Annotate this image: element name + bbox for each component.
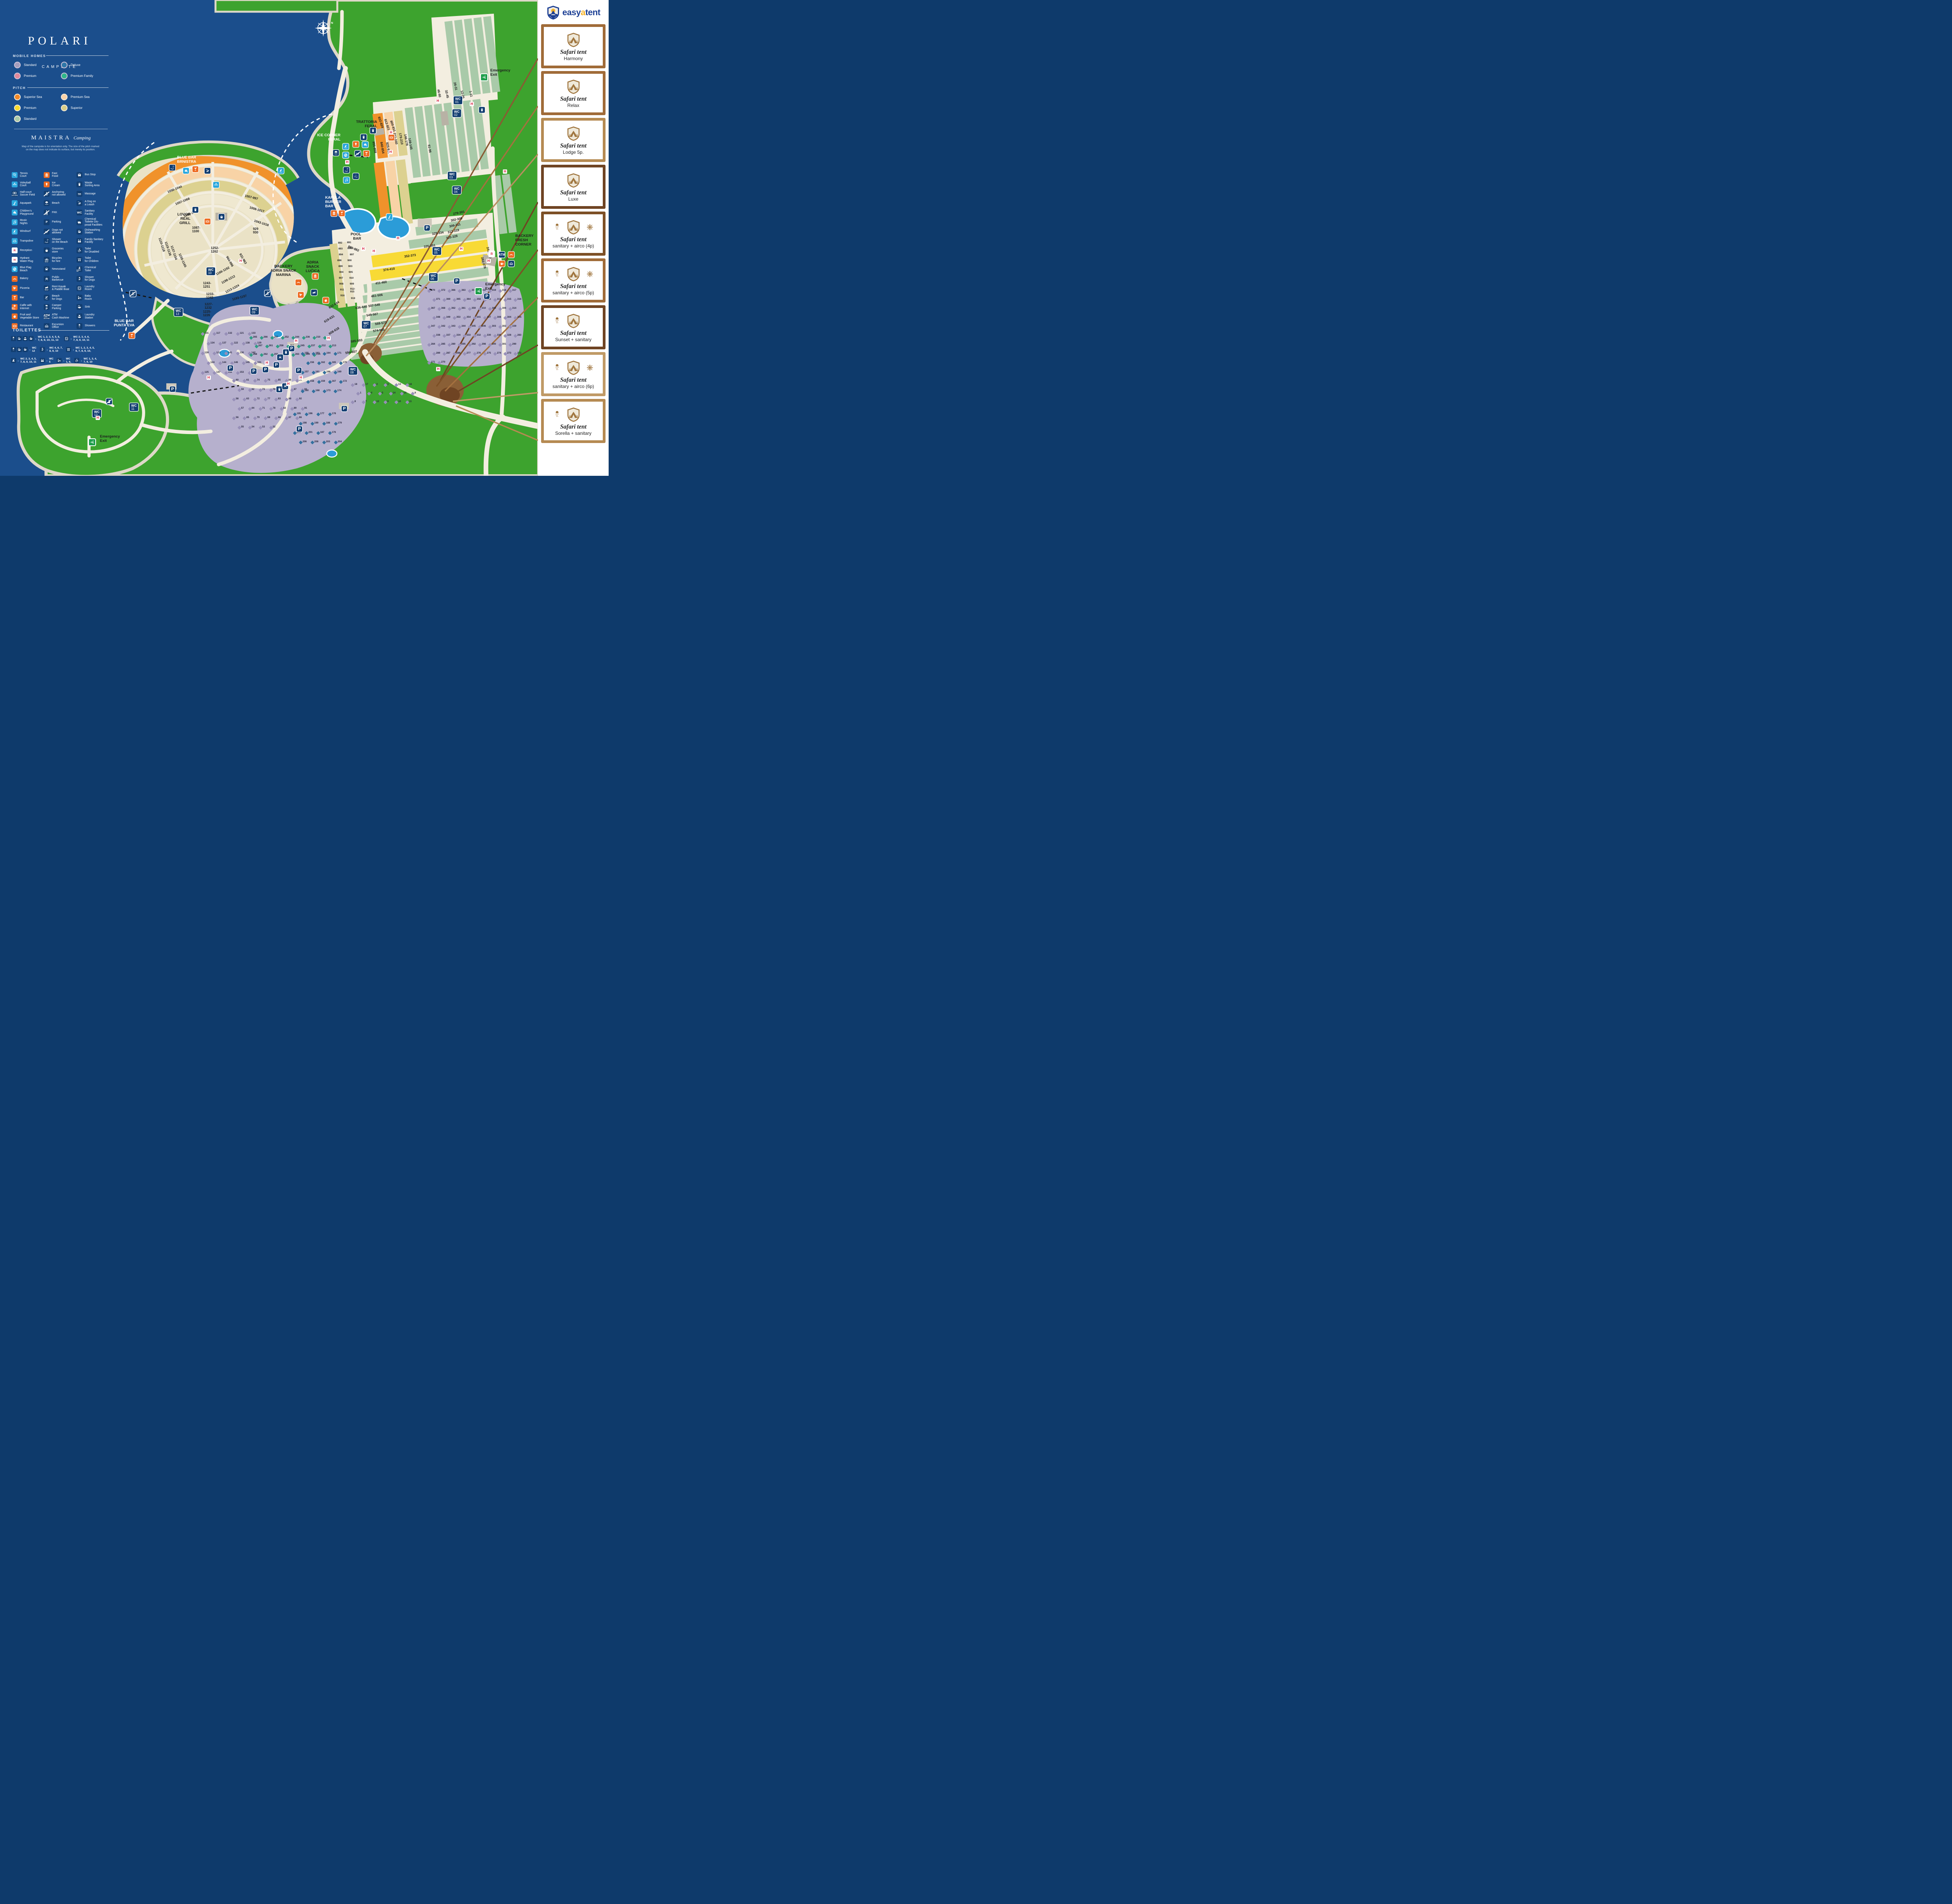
legend-item: Standard	[14, 62, 61, 68]
card-title: Safari tent	[560, 96, 587, 102]
amenity: Blue Flag Beach	[12, 266, 39, 272]
amenity-icon	[12, 210, 18, 215]
amenity-icon	[44, 238, 50, 244]
amenity: Toilet for Disabled	[77, 247, 103, 253]
amenity: A Dog on a Leash	[77, 200, 103, 206]
amenity: P Camper Parking	[44, 304, 69, 310]
amenity-icon: RENT	[44, 257, 50, 263]
mobile-homes-header: MOBILE HOMES	[13, 54, 46, 58]
tent-shield-icon	[566, 32, 581, 48]
card-title: Safari tent	[560, 330, 587, 336]
tent-shield-icon	[566, 359, 581, 376]
amenity-icon	[77, 219, 82, 225]
amenity: Showers	[77, 323, 103, 329]
pitch-header: PITCH	[13, 86, 26, 90]
amenity: Children's Playground	[12, 210, 39, 215]
toilettes-row1: ›WC 1, 2, 3, 4, 5, 6, 7, 8, 9, 10, 11, 1…	[11, 336, 89, 342]
amenity: ATMCASH MACHINE ATM Cash Mashine	[44, 313, 69, 319]
tent-sidebar: easyatent Safari tent Harmony	[538, 0, 609, 476]
amenity: Windsurf	[12, 229, 39, 235]
legend-item: Deluxe	[61, 62, 108, 68]
amenity-icon: WC	[77, 210, 82, 215]
amenity-icon	[44, 229, 50, 235]
amenity: Trampoline	[12, 238, 39, 244]
amenity-icon: SOCCER	[12, 191, 18, 197]
card-title: Safari tent	[560, 237, 587, 243]
land-peninsula	[18, 365, 168, 476]
amenity-icon	[12, 229, 18, 235]
amenity-icon	[77, 172, 82, 178]
amenity-icon	[12, 285, 18, 291]
tent-shield-icon	[566, 172, 581, 189]
amenity-icon	[12, 200, 18, 206]
amenity: Shower on the Beach	[44, 238, 69, 244]
amenity: Family Sanitary Facility	[77, 238, 103, 244]
card-title: Safari tent	[560, 377, 587, 383]
amenity-icon	[44, 191, 50, 197]
map-disclaimer: Map of the campsite is for orientation o…	[16, 145, 105, 151]
shower-icon	[553, 411, 561, 418]
amenity-icon	[12, 295, 18, 301]
shower-icon	[553, 317, 561, 325]
legend-color-dot	[14, 105, 21, 111]
amenity: Dogs not allowed	[44, 229, 69, 235]
toilette-group: ›WC 1, 6,	[57, 358, 71, 364]
toilettes-row3: ›WC 2, 3, 4, 5, 7, 8, 9, 10, 11›WC 5›WC …	[11, 358, 97, 364]
amenity: Sink	[77, 304, 103, 310]
amenity-icon	[77, 313, 82, 319]
amenity-icon: WIFI FREE	[12, 304, 18, 310]
safari-tent-card[interactable]: Safari tent sanitary + airco (6p)	[541, 352, 606, 396]
amenity-icon: CHEM WC	[77, 266, 82, 272]
safari-tent-card[interactable]: Safari tent Harmony	[541, 24, 606, 68]
amenity: R Reception	[12, 247, 39, 253]
card-name: sanitary + airco (6p)	[552, 384, 594, 389]
amenity-icon	[77, 238, 82, 244]
amenity: Toilet for Children	[77, 257, 103, 263]
amenity: Shower for Dogs	[77, 276, 103, 282]
toilette-group: ›WC 1, 3, 4, 7, 9, 10	[74, 358, 97, 364]
amenity-icon: FKK	[44, 210, 50, 215]
amenity: Aquapark	[12, 200, 39, 206]
amenity: RENT Rent Kayak & Paddle Boat	[44, 285, 69, 291]
amenity-icon: H	[12, 257, 18, 263]
amenity-icon	[77, 285, 82, 291]
amenity-icon	[44, 295, 50, 301]
amenity: Tennis Court	[12, 172, 39, 178]
amenity: Baby Room	[77, 295, 103, 301]
tent-shield-icon	[566, 406, 581, 423]
amenity-icon: P	[44, 304, 50, 310]
amenity-icon	[77, 229, 82, 235]
pool2	[378, 216, 410, 239]
toilette-group: ›WC 2, 3, 4, 5, 7, 8, 9, 10, 11	[11, 358, 37, 364]
amenity-icon	[77, 182, 82, 187]
safari-tent-card[interactable]: Safari tent Sunset + sanitary	[541, 305, 606, 349]
amenity-icon	[12, 238, 18, 244]
tent-shield-icon	[566, 219, 581, 235]
amenities-col3: Bus Stop Waste Sorting Area Massage A Do…	[77, 170, 103, 331]
card-title: Safari tent	[560, 49, 587, 55]
amenity-icon	[77, 276, 82, 282]
amenity: Chemical Toilette Dis- posal Facilities	[77, 218, 103, 227]
toilette-group: ›WC 1, 2, 3, 4, 5, 6, 7, 8, 9, 10,	[66, 347, 94, 353]
amenity: Dishwashing Station	[77, 229, 103, 235]
land-top-band	[216, 0, 337, 12]
card-title: Safari tent	[560, 424, 587, 430]
amenity: Laundry Room	[77, 285, 103, 291]
amenity-icon	[77, 257, 82, 263]
legend-item: Premium	[14, 73, 61, 79]
card-name: Sunset + sanitary	[555, 337, 591, 342]
amenity-icon	[44, 323, 50, 329]
card-name: Harmony	[564, 56, 583, 61]
amenity: Voleyball Court	[12, 182, 39, 187]
compass-north-label: N	[331, 22, 333, 25]
shower-icon	[553, 270, 561, 278]
amenity: Groceries store	[44, 247, 69, 253]
legend-item: Standard	[14, 116, 61, 122]
snowflake-icon	[586, 364, 594, 372]
amenity: Waste Sorting Area	[77, 182, 103, 187]
amenity-icon	[12, 266, 18, 272]
easyatent-shield-icon	[546, 5, 560, 20]
card-name: Sorella + sanitary	[555, 431, 591, 436]
amenity: Fast Food	[44, 172, 69, 178]
safari-tent-card[interactable]: Safari tent sanitary + airco (5p)	[541, 258, 606, 303]
amenity: WC Sanitary Facility	[77, 210, 103, 215]
tent-shield-icon	[566, 266, 581, 282]
amenity: Bakery	[12, 276, 39, 282]
amenity: Bar	[12, 295, 39, 301]
tent-shield-icon	[566, 313, 581, 329]
toilette-group: ›WC 1, 2, 3, 4, 5, 6, 7, 8, 9, 10, 11, 1…	[11, 336, 60, 342]
safari-tent-card[interactable]: Safari tent sanitary + airco (4p)	[541, 212, 606, 256]
amenity-icon	[44, 276, 50, 282]
amenity-icon	[12, 172, 18, 178]
amenity: Excursion Office	[44, 323, 69, 329]
amenity-icon	[77, 200, 82, 206]
amenity-icon: P	[44, 219, 50, 225]
card-name: Lodge 5p.	[563, 150, 584, 155]
amenity: Pizzeria	[12, 285, 39, 291]
amenity: Beach for Dogs	[44, 295, 69, 301]
card-title: Safari tent	[560, 143, 587, 149]
toilette-group: ›WC 5	[40, 358, 53, 364]
amenity-icon	[77, 191, 82, 197]
legend-color-dot	[14, 94, 21, 100]
amenity-icon: RENT	[44, 285, 50, 291]
amenity: RENT Bicycles for hire	[44, 257, 69, 263]
amenity-icon	[44, 172, 50, 178]
shower-icon	[553, 223, 561, 231]
safari-tent-card[interactable]: Safari tent Luxe	[541, 165, 606, 209]
legend-color-dot	[14, 73, 21, 79]
amenity: P Parking	[44, 219, 69, 225]
amenity: H Hydrant Water Plug	[12, 257, 39, 263]
snowflake-icon	[586, 223, 594, 231]
shower-icon	[553, 364, 561, 372]
amenity: Public Barbecue	[44, 276, 69, 282]
legend-item: Premium Family	[61, 73, 108, 79]
toilette-group: ›WC 2, 3, 4, 6, 7, 8, 9, 10, 11	[64, 336, 90, 342]
amenity: Beach	[44, 200, 69, 206]
amenity-icon	[12, 182, 18, 187]
toilette-group: ›WC 12	[11, 347, 36, 353]
amenities-col1: Tennis Court Voleyball Court SOCCER Half…	[12, 170, 39, 331]
legend-item: Premium Sea	[61, 94, 108, 100]
tent-shield-icon	[566, 125, 581, 142]
toilette-group: ›WC 4, 6, 7, 8, 9, 10	[40, 347, 62, 353]
easyatent-logo: easyatent	[538, 0, 609, 22]
amenity-icon	[44, 182, 50, 187]
amenity: Bus Stop	[77, 172, 103, 178]
card-name: sanitary + airco (4p)	[552, 244, 594, 249]
tent-shield-icon	[566, 78, 581, 95]
amenity: Laundry Station	[77, 313, 103, 319]
toilettes-row2: ›WC 12›WC 4, 6, 7, 8, 9, 10›WC 1, 2, 3, …	[11, 347, 94, 353]
legend-color-dot	[61, 73, 68, 79]
mobile-homes-legend: Standard Deluxe Premium Premium Family	[14, 59, 108, 81]
amenity: FKK FKK	[44, 210, 69, 215]
amenity: SOCCER Half-court Soccer Field	[12, 191, 39, 197]
snowflake-icon	[586, 270, 594, 278]
amenity-icon	[12, 276, 18, 282]
card-name: Luxe	[568, 197, 578, 202]
legend-item: Premium	[14, 105, 61, 111]
amenity: WIFI FREE Caffe with Internet	[12, 304, 39, 310]
amenity-icon	[77, 295, 82, 301]
amenity: Anchoring not allowed	[44, 191, 69, 197]
amenity-icon	[12, 313, 18, 319]
amenity-icon	[44, 247, 50, 253]
amenities-col2: Fast Food Ice Cream Anchoring not allowe…	[44, 170, 69, 331]
amenity-icon: ATMCASH MACHINE	[44, 313, 50, 319]
amenity: Massage	[77, 191, 103, 197]
legend-item: Superior Sea	[14, 94, 61, 100]
amenity-icon	[77, 304, 82, 310]
legend-item: Superior	[61, 105, 108, 111]
card-title: Safari tent	[560, 283, 587, 290]
amenity: Fruit and Vegetable Store	[12, 313, 39, 319]
amenity: Newsstand	[44, 266, 69, 272]
amenity-icon	[44, 266, 50, 272]
card-name: sanitary + airco (5p)	[552, 290, 594, 295]
safari-tent-card[interactable]: Safari tent Lodge 5p.	[541, 118, 606, 162]
amenity-icon	[12, 219, 18, 225]
legend-color-dot	[14, 116, 21, 122]
legend-color-dot	[61, 105, 68, 111]
safari-tent-card[interactable]: Safari tent Relax	[541, 71, 606, 115]
legend-color-dot	[61, 62, 68, 68]
safari-tent-card[interactable]: Safari tent Sorella + sanitary	[541, 399, 606, 443]
legend-color-dot	[14, 62, 21, 68]
card-title: Safari tent	[560, 190, 587, 196]
card-name: Relax	[567, 103, 579, 108]
toilettes-header: TOILETTES	[12, 328, 41, 333]
amenity-icon	[77, 323, 82, 329]
amenity: Ice Cream	[44, 182, 69, 187]
amenity-icon: R	[12, 247, 18, 253]
amenity: Music Nights	[12, 219, 39, 225]
polari-campsite-map: 1311171321211331341371221381291391231411…	[0, 0, 609, 476]
pitch-legend: Superior Sea Premium Sea Premium Superio…	[14, 91, 108, 124]
brand: MAISTRACamping	[14, 134, 108, 141]
amenity: CHEM WC Chemical Toilet	[77, 266, 103, 272]
amenity-icon	[77, 247, 82, 253]
amenity-icon	[44, 200, 50, 206]
legend-color-dot	[61, 94, 68, 100]
